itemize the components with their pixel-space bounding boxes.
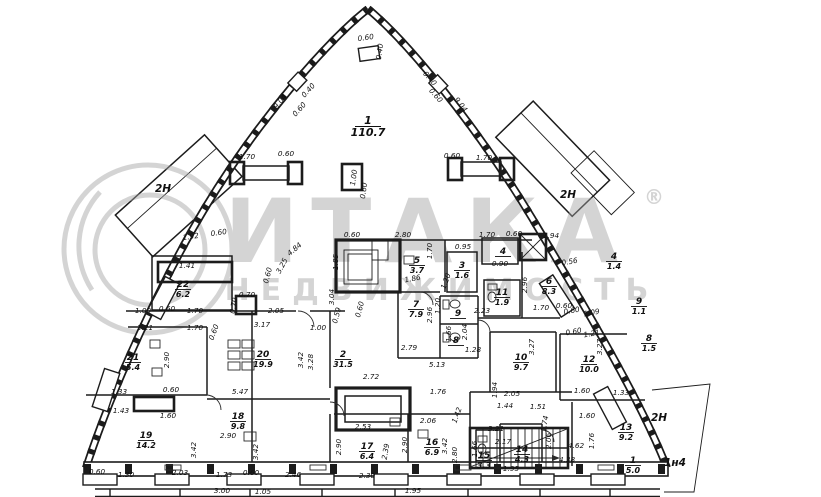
dimension-label: 1.94 (490, 382, 499, 399)
room-area: 8.3 (542, 287, 557, 296)
dimension-label: 0.60 (290, 100, 308, 118)
watermark-registered-icon: ® (644, 185, 664, 209)
room-area: 9.2 (619, 433, 634, 442)
dimension-label: 1.09 (583, 307, 601, 319)
room-number: 7 (413, 300, 420, 310)
dimension-label: 1.60 (579, 411, 596, 420)
dimension-label: 1.92 (182, 231, 200, 242)
dimension-label: 3.27 (595, 339, 604, 356)
room-number: 9 (455, 309, 461, 319)
dimension-label: 1.30 (118, 470, 135, 479)
dimension-label: 4.38 (559, 455, 576, 464)
floor-plan-page: ИТАКА ® НЕДВИЖИМОСТЬ (0, 0, 821, 497)
zone-label: 1н4 (664, 457, 686, 469)
dimension-label: 5.13 (429, 360, 446, 369)
room-number: 10 (515, 353, 528, 363)
dimension-label: 0.95 (455, 242, 472, 251)
dimension-label: 0.60 (563, 305, 581, 317)
dimension-label: 0.40 (374, 43, 385, 61)
sink-icon (150, 340, 160, 348)
dimension-label: 2.06 (420, 416, 437, 425)
dimension-label: 1.70 (425, 243, 434, 260)
dimension-label: 2.80 (450, 447, 459, 464)
room-number: 4 (610, 252, 617, 262)
dimension-label: 0.60 (565, 326, 583, 338)
dimension-label: 1.60 (574, 386, 591, 395)
dimension-label: 2.80 (395, 230, 412, 239)
room-number: 18 (232, 412, 245, 422)
dimension-label: 1.66 (444, 326, 453, 343)
dimension-label: 1.95 (405, 486, 422, 495)
room-number: 20 (257, 350, 270, 360)
dimension-label: 1.73 (216, 470, 233, 479)
room-area: 7.9 (409, 310, 424, 319)
sink-icon (244, 432, 256, 441)
dimension-label: 1.09 (135, 306, 152, 315)
dimension-label: 1.33 (613, 388, 630, 397)
dimension-label: 2.96 (520, 277, 529, 294)
dimension-label: 1.94 (543, 231, 560, 240)
zone-label: 2Н (651, 412, 667, 424)
room-number: 12 (583, 355, 596, 365)
dimension-label: 1.51 (530, 402, 546, 411)
room-area: 1.9 (495, 298, 510, 307)
room-number: 22 (177, 280, 190, 290)
dimension-label: 1.60 (160, 411, 177, 420)
dimension-label: 0.60 (89, 467, 106, 476)
dimension-label: 0.60 (506, 229, 523, 238)
dimension-label: 1.05 (255, 487, 272, 496)
dimension-label: 0.60 (159, 304, 176, 313)
dimension-label: 3.00 (214, 486, 231, 495)
room-area: 9.7 (514, 363, 529, 372)
dimension-label: 2.79 (401, 343, 418, 352)
floor-plan-svg: ИТАКА ® НЕДВИЖИМОСТЬ (0, 0, 821, 497)
elevator-shaft (336, 388, 410, 430)
room-number: 11 (496, 288, 509, 298)
room-number: 19 (140, 431, 153, 441)
room-area: 5.4 (126, 363, 141, 372)
dimension-label: 2.53 (355, 422, 372, 431)
dimension-label: 1.76 (587, 433, 596, 450)
room-area: 1.6 (455, 271, 470, 280)
dimension-label: 1.70 (533, 303, 550, 312)
dimension-label: 2.06 (544, 433, 553, 450)
dimension-label: 1.76 (430, 387, 447, 396)
room-area: 1.5 (642, 344, 657, 353)
room-number: 2 (340, 350, 346, 360)
dimension-label: 5.47 (232, 387, 249, 396)
room-area: 5.0 (626, 466, 641, 475)
room-area: 6.9 (425, 448, 440, 457)
zone-label: 2Н (560, 189, 576, 201)
room-area: 19.9 (253, 360, 273, 369)
room-area: 9.8 (231, 422, 246, 431)
dimension-label: 1.43 (113, 406, 130, 415)
room-number: 5 (414, 256, 420, 266)
sink-icon (152, 368, 162, 376)
dimension-label: 4.62 (568, 441, 585, 450)
dimension-label: 1.44 (497, 401, 514, 410)
room-area: 110.7 (351, 126, 386, 139)
dimension-label: 2.39 (380, 442, 392, 460)
dimension-label: 1.42 (450, 406, 464, 425)
room-number: 13 (620, 423, 633, 433)
room-number: 17 (361, 442, 374, 452)
dimension-label: 3.27 (527, 339, 536, 356)
room-number: 8 (646, 334, 652, 344)
dimension-label: 1.00 (310, 323, 327, 332)
dimension-label: 2.90 (162, 352, 171, 369)
dimension-label: 1.33 (111, 387, 128, 396)
dimension-label: 1.74 (539, 414, 551, 432)
dimension-label: 1.70 (239, 152, 256, 161)
room-area: 6.4 (360, 452, 375, 461)
dimension-label: 2.90 (334, 439, 343, 456)
room-area: 31.5 (333, 360, 353, 369)
room-number: 15 (478, 451, 491, 461)
dimension-label: 1.21 (137, 323, 153, 332)
dimension-label: 2.05 (268, 306, 285, 315)
dimension-label: 1.70 (187, 323, 204, 332)
dimension-label: 3.28 (306, 354, 315, 371)
dimension-label: 0.60 (163, 385, 180, 394)
dimension-label: 0.60 (243, 468, 260, 477)
room-area: 1.1 (632, 307, 646, 316)
dimension-label: 0.70 (239, 290, 256, 299)
dimension-label: 0.60 (344, 230, 361, 239)
dimension-label: 0.60 (444, 151, 461, 160)
dimension-label: 2.23 (474, 306, 491, 315)
dimension-label: 1.20 (433, 298, 442, 315)
room-area: 3.3 (477, 461, 492, 470)
dimension-label: 1.41 (179, 261, 195, 270)
room-number: 21 (127, 353, 140, 363)
dimension-label: 1.28 (465, 345, 482, 354)
dimension-label: 2.90 (400, 437, 409, 454)
zone-label: 2Н (155, 183, 171, 195)
door-swing (206, 395, 221, 410)
dimension-label: 0.60 (207, 323, 221, 342)
dimension-label: 0.60 (357, 32, 375, 43)
dimension-label: 2.03 (172, 468, 189, 477)
room-area: 3.7 (410, 266, 425, 275)
dimension-label: 3.21 (488, 424, 504, 433)
dimension-label: 2.90 (220, 431, 237, 440)
dimension-label: 3.42 (296, 352, 305, 369)
dimension-label: 1.95 (503, 464, 520, 473)
dimension-label: 1.70 (476, 153, 493, 162)
dimension-label: 3.42 (440, 438, 449, 455)
room-number: 16 (426, 438, 439, 448)
room-number: 1 (630, 456, 636, 466)
room-area: 1.4 (607, 262, 622, 271)
room-number: 8 (453, 336, 459, 346)
dimension-label: 0.60 (278, 149, 295, 158)
room-number: 3 (459, 261, 465, 271)
sink-icon (418, 430, 428, 438)
dimension-label: 2.30 (359, 471, 376, 480)
room-area: 4.3 (514, 455, 530, 464)
dimension-label: 2.17 (495, 437, 512, 446)
dimension-label: 2.72 (363, 372, 380, 381)
dimension-label: 2.46 (285, 470, 302, 479)
dimension-label: 1.70 (187, 306, 204, 315)
dimension-label: 3.04 (327, 289, 336, 306)
dimension-label: 3.42 (189, 442, 198, 459)
dimension-label: 0.90 (492, 259, 509, 268)
dimension-label: 3.42 (251, 444, 260, 461)
dimension-label: 0.59 (330, 306, 343, 324)
room-area: 10.0 (579, 365, 599, 374)
room-number: 4 (499, 247, 506, 257)
room-number: 6 (546, 277, 552, 287)
door-swing (478, 320, 490, 332)
dimension-label: 1.70 (479, 230, 496, 239)
dimension-label: 1.85 (331, 254, 340, 271)
room-area: 14.2 (136, 441, 156, 450)
room-number: 14 (516, 445, 529, 455)
dimension-label: 2.04 (460, 324, 469, 341)
room-number: 9 (636, 297, 642, 307)
room-area: 6.2 (176, 290, 191, 299)
shelving-icon (228, 340, 254, 370)
dimension-label: 2.05 (504, 389, 521, 398)
dimension-label: 3.17 (254, 320, 271, 329)
